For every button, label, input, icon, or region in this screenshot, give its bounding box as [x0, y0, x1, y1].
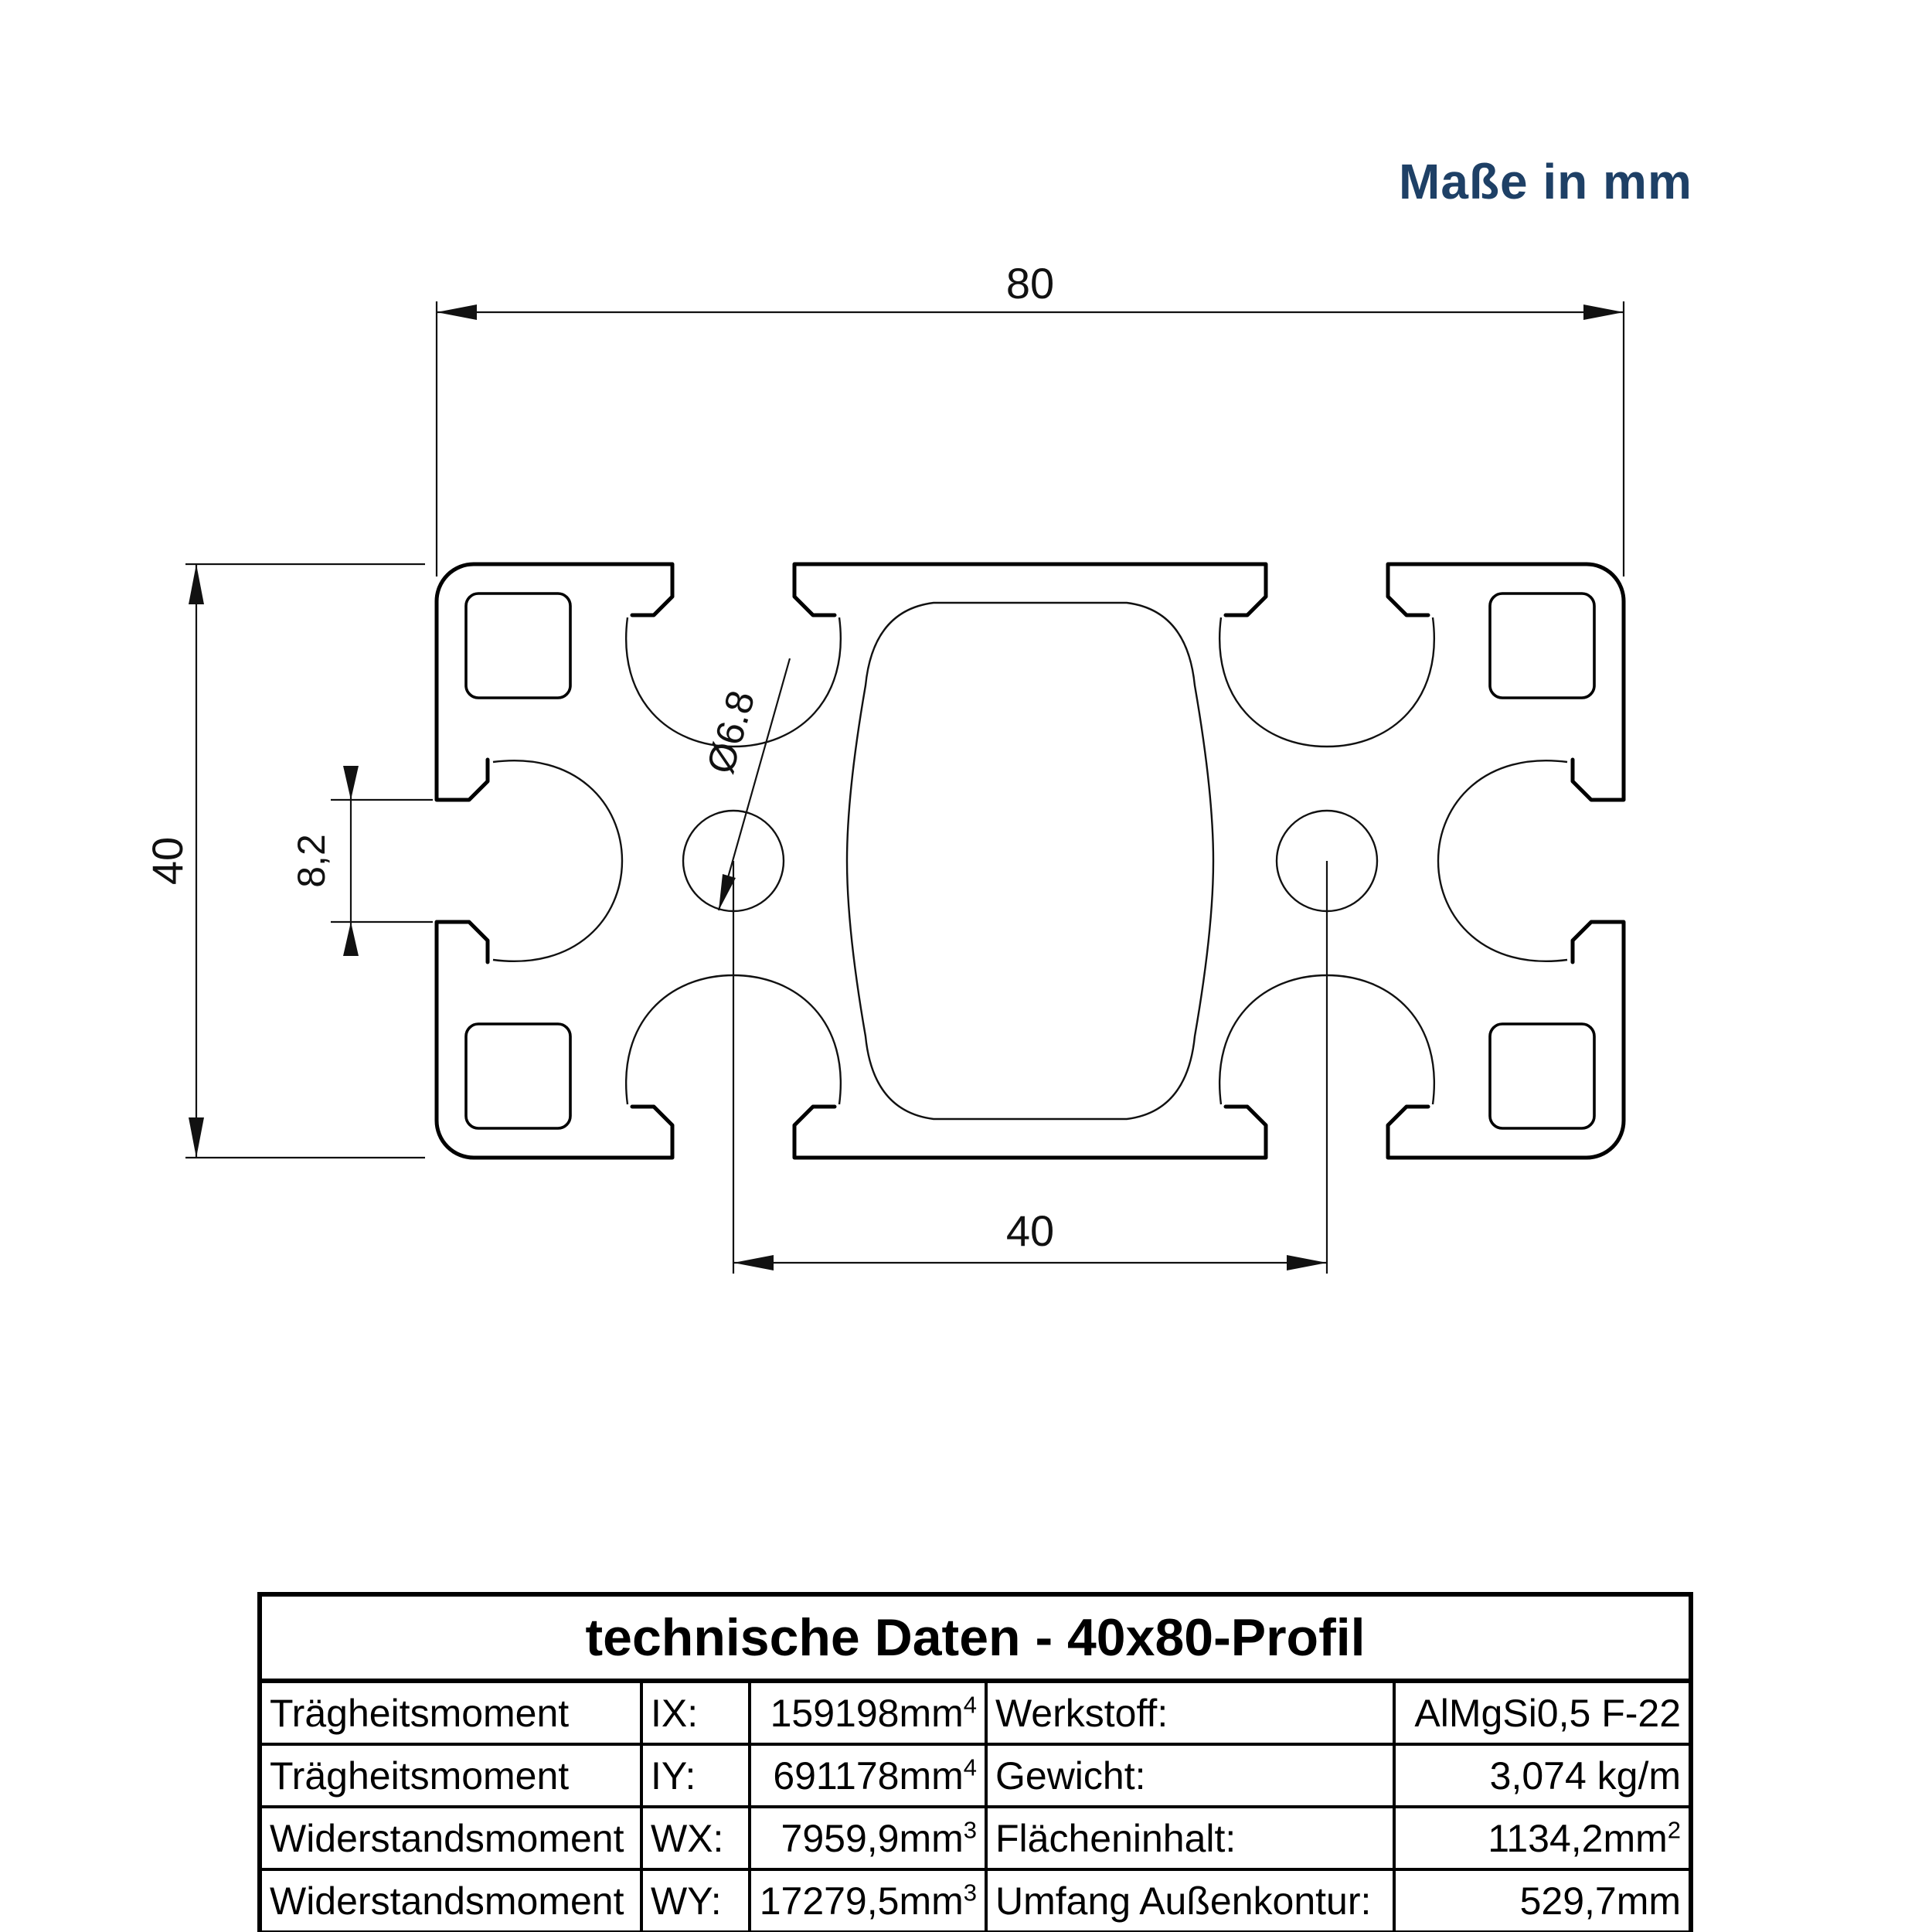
- property-name: Trägheitsmoment: [260, 1681, 641, 1744]
- dimension-height-40: 40: [143, 564, 425, 1158]
- corner-square-top-right: [1490, 594, 1594, 698]
- property-name: Widerstandsmoment: [260, 1807, 641, 1869]
- profile-technical-drawing: 80 40 8,2 Ø6.8 40: [0, 0, 1932, 1577]
- dimension-width-80: 80: [437, 259, 1624, 577]
- dimension-hole-diameter: Ø6.8: [699, 658, 790, 910]
- profile-outer-contour: [437, 564, 1624, 1158]
- dim-slot-label: 8,2: [290, 834, 333, 888]
- property-name-2: Werkstoff:: [986, 1681, 1394, 1744]
- property-name: Trägheitsmoment: [260, 1744, 641, 1807]
- property-name: Widerstandsmoment: [260, 1869, 641, 1932]
- property-name-2: Gewicht:: [986, 1744, 1394, 1807]
- table-title: technische Daten - 40x80-Profil: [260, 1594, 1691, 1681]
- table-row: Widerstandsmoment WX: 7959,9mm3 Flächeni…: [260, 1807, 1691, 1869]
- property-value: 7959,9mm3: [750, 1807, 986, 1869]
- corner-square-bottom-left: [466, 1024, 570, 1128]
- central-cavity: [847, 603, 1213, 1119]
- corner-square-top-left: [466, 594, 570, 698]
- page-canvas: Maße in mm 80 40: [0, 0, 1932, 1932]
- dim-spacing-label: 40: [1006, 1206, 1054, 1255]
- property-symbol: WY:: [641, 1869, 750, 1932]
- table-row: Trägheitsmoment IY: 691178mm4 Gewicht: 3…: [260, 1744, 1691, 1807]
- dim-hole-label: Ø6.8: [699, 685, 764, 778]
- dim-height-label: 40: [143, 837, 192, 885]
- property-value: 691178mm4: [750, 1744, 986, 1807]
- property-value-2: AlMgSi0,5 F-22: [1394, 1681, 1691, 1744]
- dim-width-label: 80: [1006, 259, 1054, 308]
- dimension-hole-spacing: 40: [733, 861, 1327, 1274]
- property-name-2: Umfang Außenkontur:: [986, 1869, 1394, 1932]
- property-symbol: IX:: [641, 1681, 750, 1744]
- table-row: Widerstandsmoment WY: 17279,5mm3 Umfang …: [260, 1869, 1691, 1932]
- corner-square-bottom-right: [1490, 1024, 1594, 1128]
- property-name-2: Flächeninhalt:: [986, 1807, 1394, 1869]
- property-value-2: 3,074 kg/m: [1394, 1744, 1691, 1807]
- property-value-2: 1134,2mm2: [1394, 1807, 1691, 1869]
- property-value: 17279,5mm3: [750, 1869, 986, 1932]
- property-symbol: IY:: [641, 1744, 750, 1807]
- property-value-2: 529,7mm: [1394, 1869, 1691, 1932]
- property-value: 159198mm4: [750, 1681, 986, 1744]
- technical-data-table: technische Daten - 40x80-Profil Trägheit…: [257, 1592, 1693, 1932]
- tslot-chambers: [493, 617, 1567, 1104]
- property-symbol: WX:: [641, 1807, 750, 1869]
- table-row: Trägheitsmoment IX: 159198mm4 Werkstoff:…: [260, 1681, 1691, 1744]
- dimension-slot-opening: 8,2: [290, 766, 433, 956]
- table-title-row: technische Daten - 40x80-Profil: [260, 1594, 1691, 1681]
